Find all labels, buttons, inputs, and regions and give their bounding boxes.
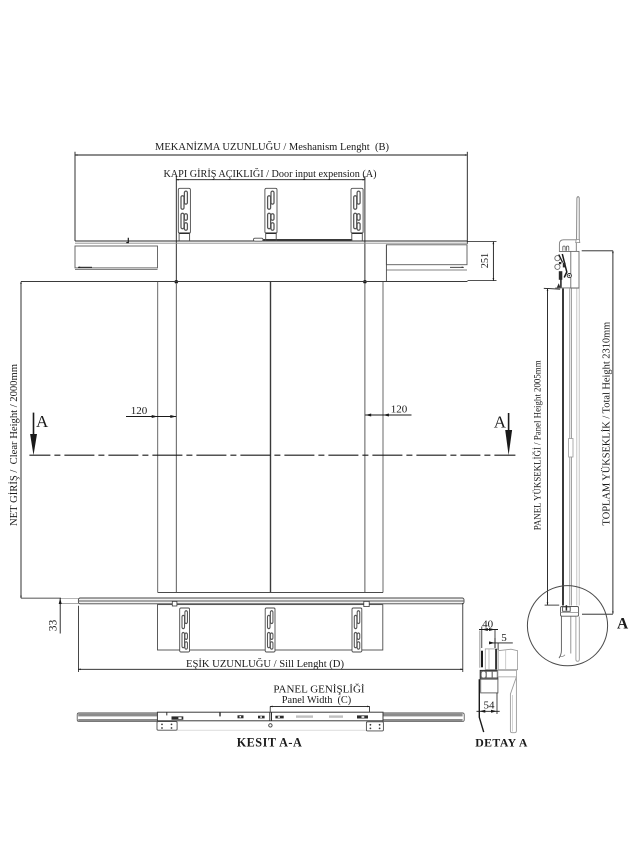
svg-text:33: 33: [48, 620, 60, 632]
svg-text:TOPLAM YÜKSEKLİK / Total Heigh: TOPLAM YÜKSEKLİK / Total Height 2310mm: [601, 322, 613, 526]
svg-text:PANEL GENİŞLİĞİ: PANEL GENİŞLİĞİ: [273, 683, 364, 695]
svg-text:120: 120: [131, 405, 148, 417]
svg-text:KESIT A-A: KESIT A-A: [237, 735, 303, 749]
svg-text:PANEL YÜKSEKLİĞİ / Panel Heigh: PANEL YÜKSEKLİĞİ / Panel Height 2005mm: [533, 360, 543, 530]
svg-text:40: 40: [482, 618, 494, 630]
svg-text:Panel Width (C): Panel Width (C): [282, 695, 351, 706]
svg-text:MEKANİZMA UZUNLUĞU / Meshanism: MEKANİZMA UZUNLUĞU / Meshanism Lenght (B…: [155, 141, 389, 153]
svg-text:A: A: [36, 412, 49, 431]
svg-text:5: 5: [501, 632, 507, 644]
svg-text:251: 251: [480, 253, 491, 268]
svg-text:A: A: [494, 413, 507, 432]
svg-text:A: A: [617, 615, 629, 632]
svg-text:DETAY A: DETAY A: [475, 735, 528, 749]
svg-text:120: 120: [391, 403, 408, 415]
svg-text:EŞİK UZUNLUĞU / Sill Lenght (D: EŞİK UZUNLUĞU / Sill Lenght (D): [186, 658, 344, 670]
svg-text:NET GİRİŞ / Clear Height / 20: NET GİRİŞ / Clear Height / 2000mm: [8, 363, 20, 526]
svg-text:KAPI GİRİŞ AÇIKLIĞI / Door inp: KAPI GİRİŞ AÇIKLIĞI / Door input expensi…: [163, 168, 376, 180]
